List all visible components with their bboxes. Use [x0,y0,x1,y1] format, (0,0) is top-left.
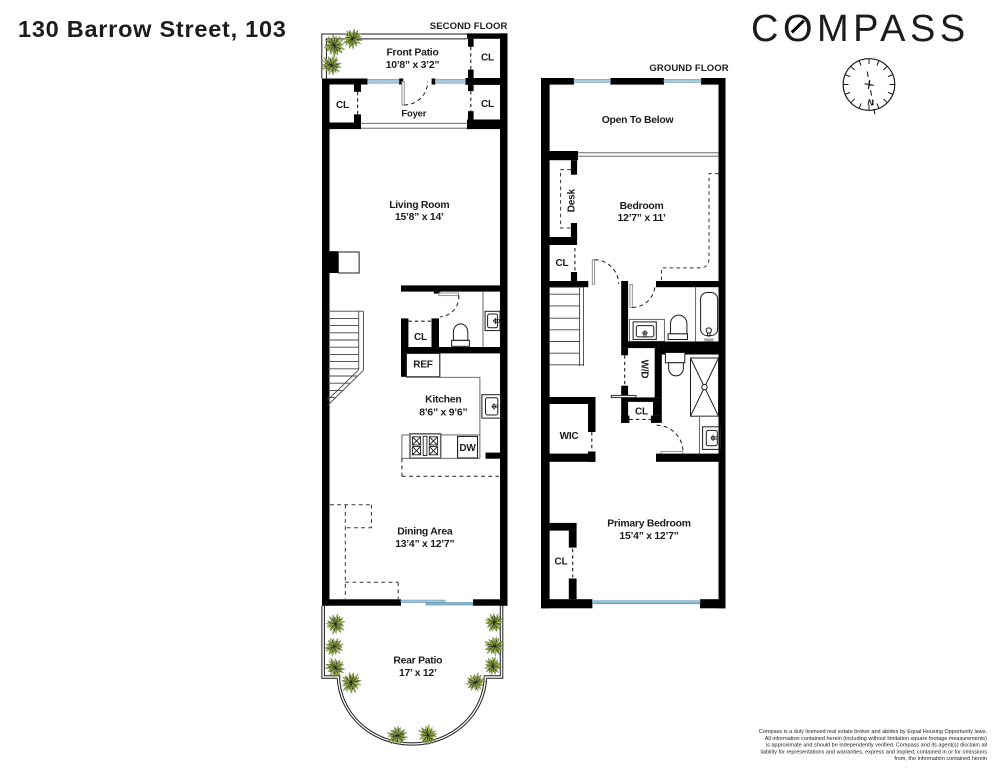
svg-text:130 Barrow Street, 103: 130 Barrow Street, 103 [18,16,287,42]
svg-text:15’4” x 12’7”: 15’4” x 12’7” [619,531,678,542]
svg-text:13’4” x 12’7”: 13’4” x 12’7” [395,539,454,550]
svg-text:WIC: WIC [560,431,579,442]
svg-text:COMPASS: COMPASS [751,8,970,50]
svg-text:SECOND FLOOR: SECOND FLOOR [430,21,508,32]
svg-text:Foyer: Foyer [401,108,426,119]
svg-text:17’ x 12’: 17’ x 12’ [399,668,437,679]
svg-text:All information contained here: All information contained herein (includ… [765,736,987,742]
svg-text:W/D: W/D [638,360,649,379]
svg-text:Front Patio: Front Patio [386,47,438,58]
svg-text:CL: CL [556,258,569,269]
svg-text:is approximate and should be i: is approximate and should be independent… [766,743,987,749]
svg-text:Open To Below: Open To Below [602,115,675,126]
svg-text:GROUND FLOOR: GROUND FLOOR [649,63,728,74]
svg-text:Dining Area: Dining Area [397,526,453,537]
svg-text:Compass is a duly licensed rea: Compass is a duly licensed real estate b… [759,729,988,735]
svg-text:Bedroom: Bedroom [620,201,664,212]
svg-text:DW: DW [459,443,476,454]
svg-text:liability for representations: liability for representations and warran… [760,749,987,755]
svg-text:12’7” x 11’: 12’7” x 11’ [618,213,666,224]
svg-text:Primary Bedroom: Primary Bedroom [607,519,690,530]
svg-text:CL: CL [635,406,648,417]
svg-text:Desk: Desk [567,189,578,213]
svg-text:Rear Patio: Rear Patio [393,656,442,667]
svg-text:Kitchen: Kitchen [425,395,461,406]
svg-text:Living Room: Living Room [389,200,449,211]
svg-text:CL: CL [336,100,349,111]
svg-text:from, the information containe: from, the information contained herein [894,756,987,762]
svg-text:10’8” x 3’2”: 10’8” x 3’2” [386,60,440,71]
svg-text:CL: CL [555,556,568,567]
svg-text:CL: CL [481,99,494,110]
svg-text:CL: CL [481,53,494,64]
svg-text:15’8” x 14’: 15’8” x 14’ [395,212,444,223]
svg-text:CL: CL [414,332,427,343]
svg-text:8’6” x 9’6”: 8’6” x 9’6” [419,408,467,419]
svg-text:REF: REF [413,360,432,371]
